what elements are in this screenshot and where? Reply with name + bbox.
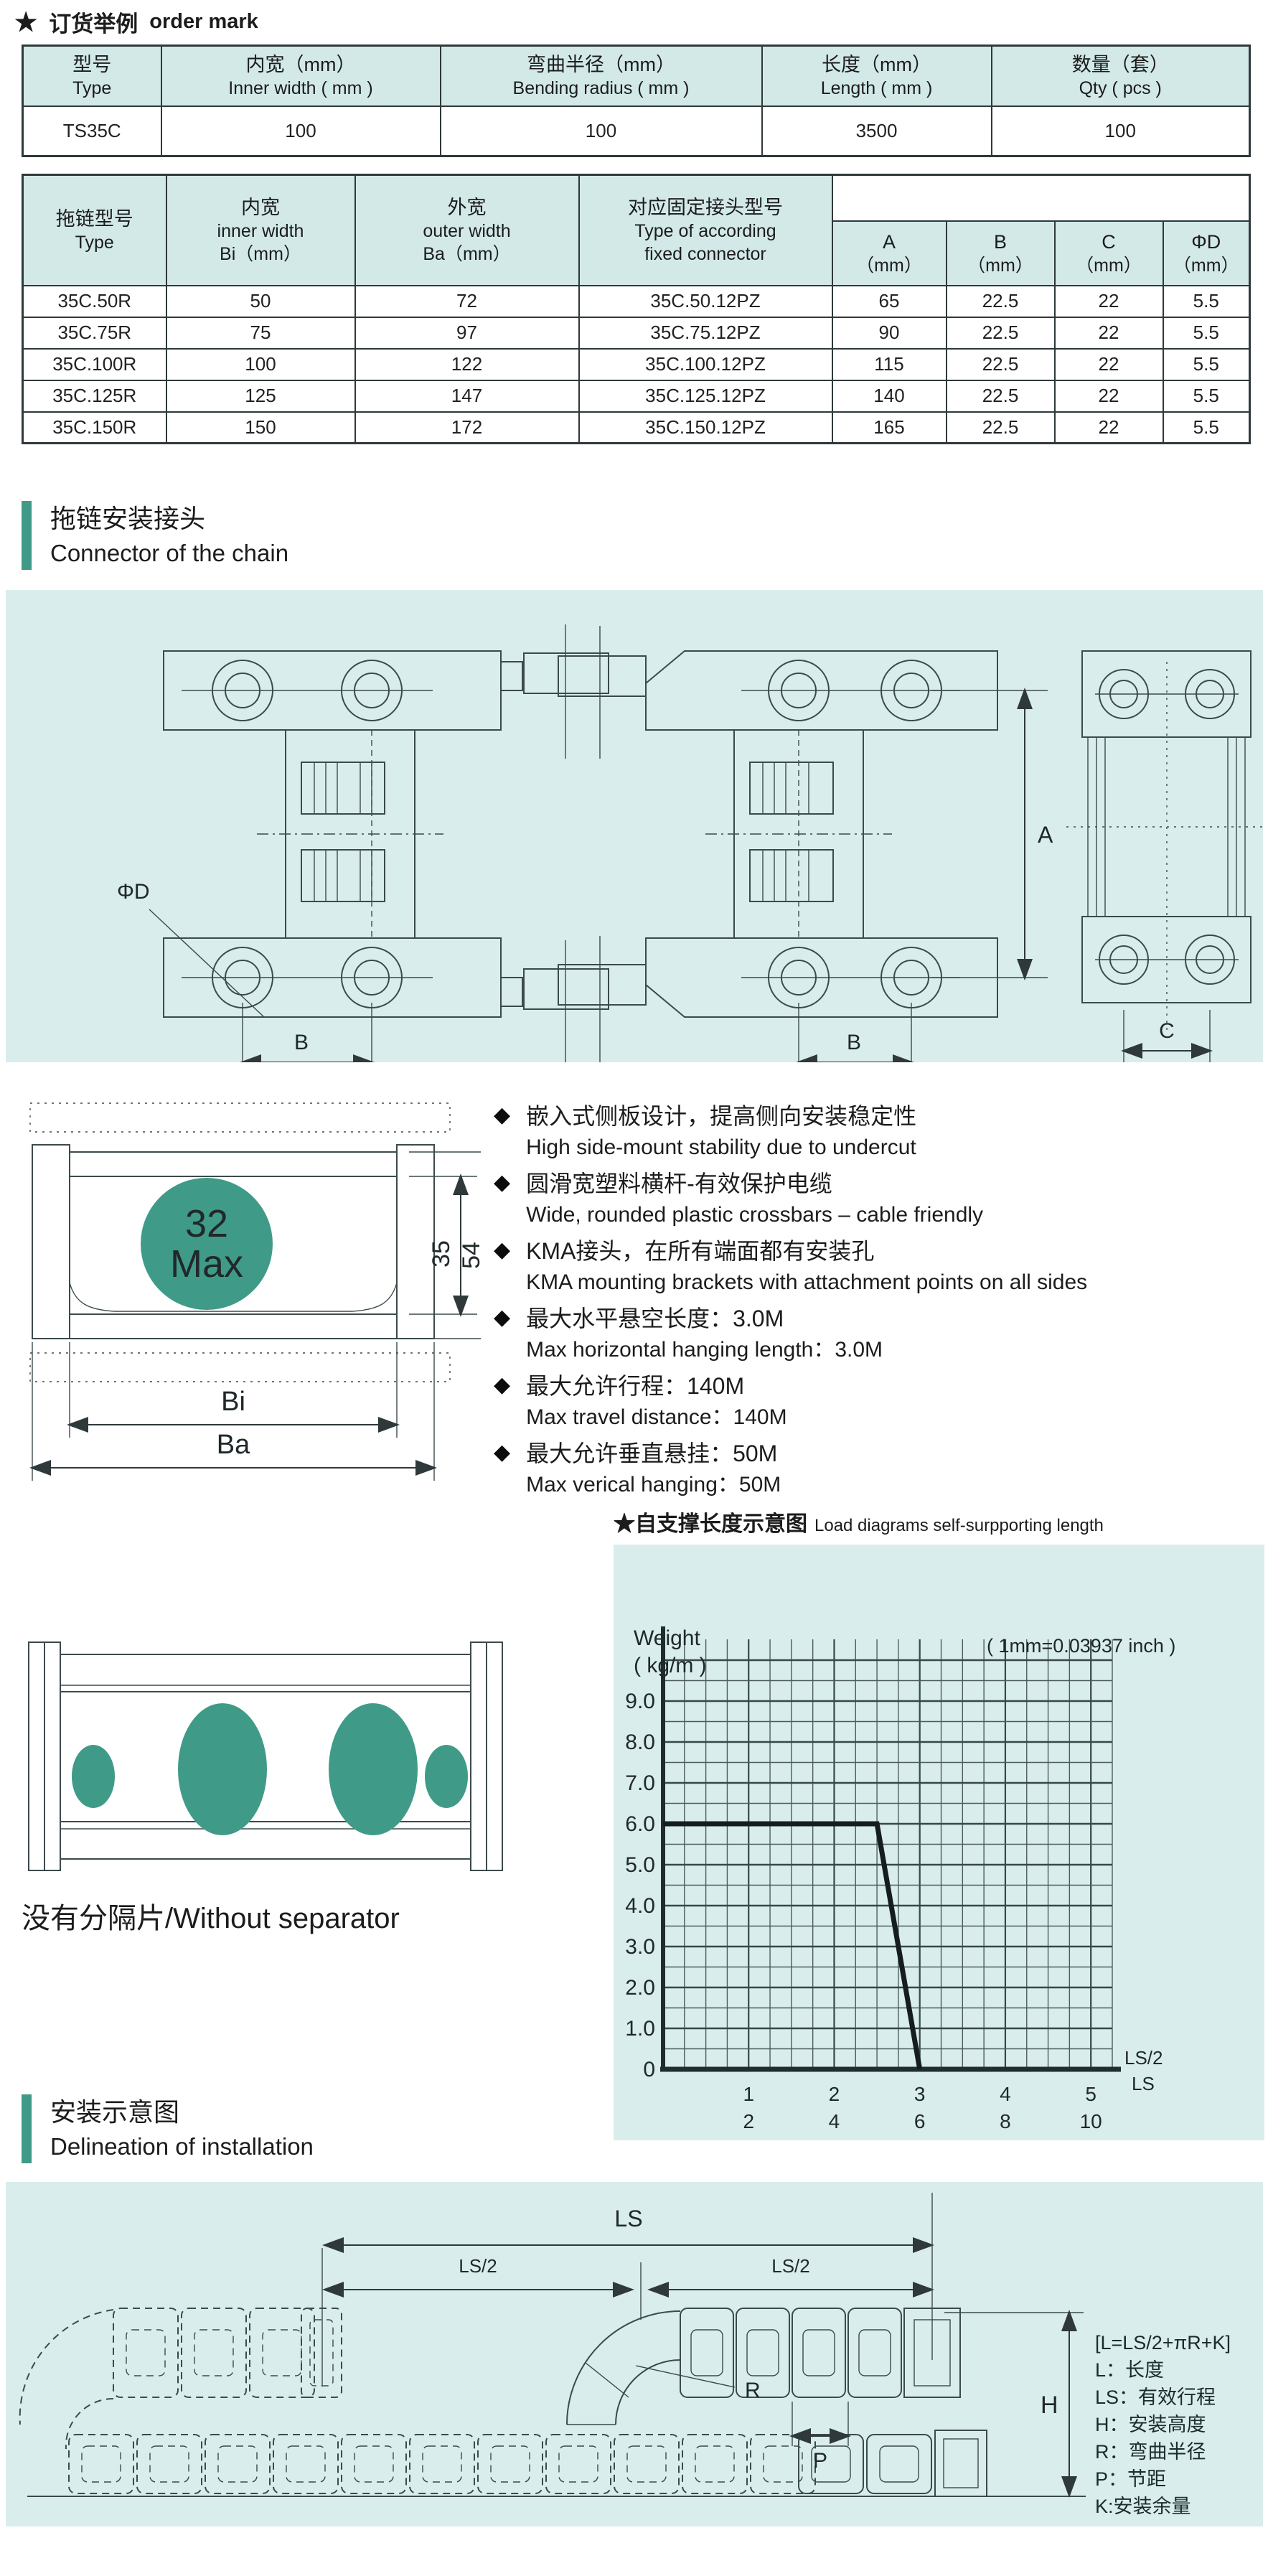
table-cell: 97 — [355, 317, 579, 349]
star-icon: ★ — [14, 9, 37, 35]
diamond-bullet-icon: ◆ — [494, 1235, 510, 1298]
list-item: ◆ 圆滑宽塑料横杆-有效保护电缆Wide, rounded plastic cr… — [494, 1167, 1267, 1230]
col-dim-a: A（mm） — [832, 221, 947, 286]
dim-b-label: B — [294, 1031, 309, 1054]
svg-text:LS: LS — [1132, 2073, 1155, 2094]
table-cell: 22.5 — [947, 286, 1055, 317]
chart-title-en: Load diagrams self-surpporting length — [814, 1516, 1104, 1536]
svg-text:2.0: 2.0 — [625, 1976, 655, 2000]
chart-tick-labels: 01.02.03.04.05.06.07.08.09.012243648510 — [625, 1690, 1102, 2132]
end-bracket-lower — [935, 2430, 987, 2496]
table-cell: 22.5 — [947, 317, 1055, 349]
table-cell: 22.5 — [947, 412, 1055, 444]
col-ba: 外宽outer widthBa（mm） — [355, 175, 579, 286]
phantom-bend-outer — [20, 2310, 113, 2425]
table-row: TS35C1001003500100 — [23, 106, 1250, 156]
table-cell: 5.5 — [1163, 349, 1250, 380]
spec-table: 拖链型号Type 内宽inner widthBi（mm） 外宽outer wid… — [22, 174, 1251, 444]
section-connector-header: 拖链安装接头 Connector of the chain — [22, 501, 288, 570]
diamond-bullet-icon: ◆ — [494, 1167, 510, 1230]
diamond-bullet-icon: ◆ — [494, 1369, 510, 1433]
ls-label: LS — [614, 2206, 642, 2231]
table-cell: TS35C — [23, 106, 161, 156]
inner-height-label: 35 — [428, 1240, 455, 1268]
table-cell: 35C.75.12PZ — [579, 317, 832, 349]
table-cell: 22 — [1055, 380, 1163, 412]
diamond-bullet-icon: ◆ — [494, 1302, 510, 1365]
table-cell: 22 — [1055, 286, 1163, 317]
chain-cross-section-drawing: 32 Max 35 54 Bi Ba — [22, 1095, 481, 1497]
table-cell: 35C.125.12PZ — [579, 380, 832, 412]
svg-text:9.0: 9.0 — [625, 1690, 655, 1713]
table-cell: 165 — [832, 412, 947, 444]
dim-a-label: A — [1038, 822, 1053, 848]
section-bar-icon — [22, 501, 32, 570]
table-cell: 22.5 — [947, 380, 1055, 412]
chain-phantom-upper — [113, 2308, 314, 2397]
table-cell: 172 — [355, 412, 579, 444]
table-cell: 35C.125R — [23, 380, 166, 412]
table-cell: 5.5 — [1163, 317, 1250, 349]
spec-table-body: 35C.50R507235C.50.12PZ6522.5225.535C.75R… — [23, 286, 1250, 444]
section-bar-icon — [22, 2094, 32, 2163]
table-cell: 3500 — [762, 106, 992, 156]
order-example-table: 型号Type 内宽（mm）Inner width ( mm ) 弯曲半径（mm）… — [22, 45, 1251, 157]
col-type: 型号Type — [23, 46, 161, 106]
order-title-zh: 订货举例 — [49, 6, 138, 38]
bend-outer — [567, 2311, 680, 2425]
ls2-right-label: LS/2 — [771, 2255, 810, 2277]
catalog-page: { "order": { "star": "★", "title_zh": "订… — [0, 0, 1268, 2576]
spec-header-row-1: 拖链型号Type 内宽inner widthBi（mm） 外宽outer wid… — [23, 175, 1250, 221]
order-table-header-row: 型号Type 内宽（mm）Inner width ( mm ) 弯曲半径（mm）… — [23, 46, 1250, 106]
without-separator-drawing — [7, 1629, 524, 1884]
table-cell: 35C.100.12PZ — [579, 349, 832, 380]
table-cell: 140 — [832, 380, 947, 412]
list-item: ◆ KMA接头，在所有端面都有安装孔KMA mounting brackets … — [494, 1235, 1267, 1298]
svg-text:( 1mm=0.03937 inch ): ( 1mm=0.03937 inch ) — [987, 1635, 1175, 1657]
cable-bundle-icons — [72, 1703, 468, 1835]
col-chain-type: 拖链型号Type — [23, 175, 166, 286]
svg-text:4: 4 — [829, 2110, 840, 2132]
chart-grid — [663, 1639, 1112, 2069]
connector-drawings-panel: ΦD B — [6, 590, 1263, 1062]
col-dim-c: C（mm） — [1055, 221, 1163, 286]
col-dim-d: ΦD（mm） — [1163, 221, 1250, 286]
max-diameter-word: Max — [170, 1242, 243, 1285]
table-cell: 22.5 — [947, 349, 1055, 380]
table-cell: 50 — [166, 286, 355, 317]
connector-front-view: ΦD B — [117, 624, 609, 1062]
table-cell: 5.5 — [1163, 286, 1250, 317]
installation-legend: [L=LS/2+πR+K] L：长度 LS：有效行程 H：安装高度 R：弯曲半径… — [1095, 2329, 1267, 2520]
table-row: 35C.100R10012235C.100.12PZ11522.5225.5 — [23, 349, 1250, 380]
table-cell: 22 — [1055, 412, 1163, 444]
col-connector-type: 对应固定接头型号Type of accordingfixed connector — [579, 175, 832, 286]
table-cell: 35C.50.12PZ — [579, 286, 832, 317]
feature-list: ◆ 嵌入式侧板设计，提高侧向安装稳定性High side-mount stabi… — [494, 1100, 1267, 1504]
list-item: ◆ 最大水平悬空长度：3.0MMax horizontal hanging le… — [494, 1302, 1267, 1365]
list-item: ◆ 嵌入式侧板设计，提高侧向安装稳定性High side-mount stabi… — [494, 1100, 1267, 1163]
col-qty: 数量（套）Qty ( pcs ) — [992, 46, 1250, 106]
table-row: 35C.75R759735C.75.12PZ9022.5225.5 — [23, 317, 1250, 349]
svg-text:3.0: 3.0 — [625, 1935, 655, 1959]
chart-axes — [660, 1626, 1121, 2069]
max-diameter-value: 32 — [185, 1202, 228, 1245]
table-cell: 75 — [166, 317, 355, 349]
connector-technical-drawing: ΦD B — [6, 590, 1263, 1062]
svg-text:Weight: Weight — [634, 1626, 700, 1650]
table-cell: 100 — [166, 349, 355, 380]
order-mark-title: ★ 订货举例 order mark — [14, 6, 258, 38]
phantom-top — [30, 1103, 450, 1132]
table-cell: 5.5 — [1163, 380, 1250, 412]
table-cell: 150 — [166, 412, 355, 444]
install-title-en: Delineation of installation — [50, 2130, 314, 2163]
phantom-bottom — [30, 1353, 450, 1382]
separator-note: 没有分隔片/Without separator — [22, 1895, 400, 1936]
svg-text:LS/2: LS/2 — [1124, 2047, 1163, 2069]
svg-text:2: 2 — [829, 2083, 840, 2105]
svg-text:6.0: 6.0 — [625, 1812, 655, 1836]
svg-text:6: 6 — [914, 2110, 926, 2132]
svg-text:( kg/m ): ( kg/m ) — [634, 1654, 707, 1677]
svg-text:10: 10 — [1080, 2110, 1102, 2132]
table-cell: 35C.100R — [23, 349, 166, 380]
table-row: 35C.150R15017235C.150.12PZ16522.5225.5 — [23, 412, 1250, 444]
table-cell: 147 — [355, 380, 579, 412]
svg-text:5.0: 5.0 — [625, 1853, 655, 1877]
pitch-label: P — [813, 2449, 827, 2473]
connector-front-view-mirrored: A B — [558, 626, 1053, 1062]
installation-diagram-panel: LS LS/2 LS/2 R P H [L=LS/ — [6, 2182, 1263, 2526]
svg-text:1.0: 1.0 — [625, 2017, 655, 2041]
self-supporting-length-chart: 01.02.03.04.05.06.07.08.09.012243648510W… — [614, 1545, 1264, 2140]
svg-text:2: 2 — [743, 2110, 754, 2132]
col-bending-radius: 弯曲半径（mm）Bending radius ( mm ) — [441, 46, 762, 106]
table-cell: 100 — [441, 106, 762, 156]
dim-b2-label: B — [847, 1031, 861, 1054]
table-cell: 5.5 — [1163, 412, 1250, 444]
phantom-bend-inner — [66, 2399, 113, 2449]
svg-text:7.0: 7.0 — [625, 1771, 655, 1795]
connector-title-zh: 拖链安装接头 — [50, 501, 288, 537]
load-diagram-panel: 01.02.03.04.05.06.07.08.09.012243648510W… — [614, 1545, 1264, 2140]
svg-text:4: 4 — [1000, 2083, 1011, 2105]
col-inner-width: 内宽（mm）Inner width ( mm ) — [161, 46, 441, 106]
list-item: ◆ 最大允许垂直悬挂：50MMax verical hanging：50M — [494, 1437, 1267, 1500]
ls2-left-label: LS/2 — [459, 2255, 497, 2277]
bend-inner — [616, 2360, 680, 2425]
table-cell: 35C.75R — [23, 317, 166, 349]
load-diagram-title: ★自支撑长度示意图 Load diagrams self-surpporting… — [614, 1506, 1104, 1537]
chart-title-zh: 自支撑长度示意图 — [635, 1512, 807, 1536]
svg-text:0: 0 — [643, 2058, 655, 2081]
svg-text:5: 5 — [1085, 2083, 1096, 2105]
svg-text:1: 1 — [743, 2083, 754, 2105]
chain-phantom-lower — [69, 2435, 815, 2493]
table-cell: 100 — [161, 106, 441, 156]
table-cell: 35C.50R — [23, 286, 166, 317]
chain-upper-run — [680, 2308, 901, 2397]
connector-side-view: C — [1066, 651, 1263, 1062]
col-dim-b: B（mm） — [947, 221, 1055, 286]
order-title-en: order mark — [149, 10, 258, 34]
radius-label: R — [745, 2379, 761, 2402]
spec-header-blank-strip — [832, 175, 1250, 221]
bi-label: Bi — [221, 1387, 245, 1417]
table-cell: 22 — [1055, 317, 1163, 349]
svg-text:3: 3 — [914, 2083, 926, 2105]
ba-label: Ba — [217, 1430, 250, 1460]
height-label: H — [1041, 2392, 1058, 2419]
col-bi: 内宽inner widthBi（mm） — [166, 175, 355, 286]
table-cell: 115 — [832, 349, 947, 380]
table-cell: 22 — [1055, 349, 1163, 380]
connector-title-en: Connector of the chain — [50, 537, 288, 570]
list-item: ◆ 最大允许行程：140MMax travel distance：140M — [494, 1369, 1267, 1433]
section-installation-header: 安装示意图 Delineation of installation — [22, 2094, 314, 2163]
table-row: 35C.50R507235C.50.12PZ6522.5225.5 — [23, 286, 1250, 317]
svg-text:8.0: 8.0 — [625, 1730, 655, 1754]
star-icon: ★ — [614, 1512, 635, 1536]
svg-text:8: 8 — [1000, 2110, 1011, 2132]
phi-d-label: ΦD — [117, 880, 150, 904]
order-table-body: TS35C1001003500100 — [23, 106, 1250, 156]
dim-c-label: C — [1159, 1019, 1175, 1043]
table-cell: 35C.150.12PZ — [579, 412, 832, 444]
table-cell: 65 — [832, 286, 947, 317]
table-cell: 100 — [992, 106, 1250, 156]
installation-diagram: LS LS/2 LS/2 R P H — [6, 2182, 1263, 2526]
table-cell: 125 — [166, 380, 355, 412]
table-cell: 90 — [832, 317, 947, 349]
table-cell: 122 — [355, 349, 579, 380]
diamond-bullet-icon: ◆ — [494, 1100, 510, 1163]
diamond-bullet-icon: ◆ — [494, 1437, 510, 1500]
table-cell: 35C.150R — [23, 412, 166, 444]
table-row: 35C.125R12514735C.125.12PZ14022.5225.5 — [23, 380, 1250, 412]
svg-text:4.0: 4.0 — [625, 1894, 655, 1918]
table-cell: 72 — [355, 286, 579, 317]
outer-height-label: 54 — [458, 1242, 481, 1269]
install-title-zh: 安装示意图 — [50, 2094, 314, 2130]
chart-axis-titles: Weight( kg/m )( 1mm=0.03937 inch )LS/2LS — [634, 1626, 1175, 2094]
col-length: 长度（mm）Length ( mm ) — [762, 46, 992, 106]
